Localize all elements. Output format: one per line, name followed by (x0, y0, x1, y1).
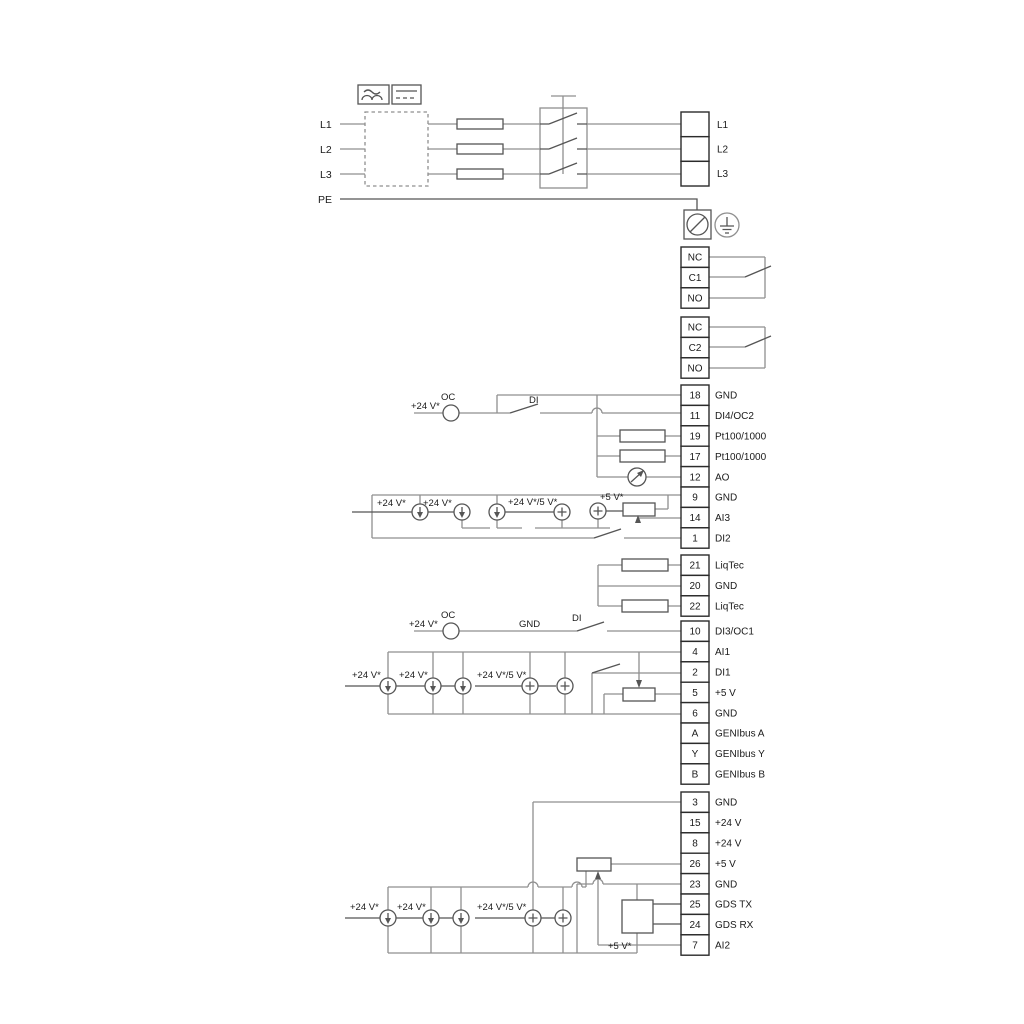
gnd3-wire (533, 802, 681, 910)
group3-rail (388, 871, 586, 887)
io1-terminal-label-GND: GND (715, 391, 737, 402)
label-24v-g1b: +24 V* (423, 498, 452, 509)
label-gnd-wire: GND (519, 619, 540, 630)
io2-terminal-number-B: B (692, 770, 699, 781)
liqtec-terminal-number-21: 21 (689, 561, 701, 572)
io2-terminal-number-4: 4 (692, 647, 698, 658)
label-l3: L3 (320, 169, 332, 181)
io1-terminal-number-11: 11 (690, 411, 701, 422)
io3-terminal-label-+5 V: +5 V (715, 859, 736, 870)
liqtec-resistor-1 (622, 559, 668, 571)
pt100-resistor-2 (620, 450, 665, 462)
label-di4: DI (529, 395, 539, 406)
wiring-diagram: L1L2L3 NCC1NO NCC2NO 18GND11DI4/OC219Pt1… (0, 0, 1024, 1024)
label-24v-g2a: +24 V* (352, 670, 381, 681)
io3-terminal-number-8: 8 (692, 839, 698, 850)
liqtec-terminal-number-20: 20 (689, 581, 701, 592)
group1-lower-brackets (462, 519, 610, 528)
label-24v5v-g3: +24 V*/5 V* (477, 902, 527, 913)
earth-ground-icon (720, 217, 734, 233)
group1-potentiometer (623, 503, 655, 516)
fuse-l3 (457, 169, 503, 179)
io3-terminal-label-+24 V: +24 V (715, 839, 742, 850)
liqtec-terminal-number-22: 22 (689, 602, 701, 613)
io1-terminal-number-9: 9 (692, 493, 698, 504)
current-source-down-icon (453, 910, 469, 926)
di2-switch-lever (594, 529, 621, 538)
io2-terminal-label-+5 V: +5 V (715, 688, 736, 699)
io3-terminal-label-GDS TX: GDS TX (715, 900, 752, 911)
current-source-plus-icon (590, 503, 606, 519)
group1-stubs (352, 511, 623, 512)
relay2-terminal-number-NO: NO (688, 364, 703, 375)
analog-group3-wiring (345, 802, 681, 953)
oc1-open-collector-circle (443, 623, 459, 639)
relay2-terminal-number-C2: C2 (689, 343, 702, 354)
fuse-l2 (457, 144, 503, 154)
io1-terminal-label-AO: AO (715, 472, 730, 483)
di3-wiring (414, 622, 681, 639)
io3-terminal-label-GND: GND (715, 798, 737, 809)
label-24v-g3a: +24 V* (350, 902, 379, 913)
io3-terminal-number-26: 26 (689, 859, 701, 870)
pe-wire (340, 199, 697, 210)
io1-terminal-number-18: 18 (689, 391, 701, 402)
relay2-wiring (709, 327, 771, 368)
mains-terminal-label-L2: L2 (717, 145, 729, 156)
current-source-down-icon (489, 504, 505, 520)
mains-terminal-box-L2 (681, 137, 709, 162)
io2-terminal-number-2: 2 (692, 668, 698, 679)
label-24v-oc2: +24 V* (411, 401, 440, 412)
di4-wire (540, 408, 681, 413)
gds-wires (653, 904, 681, 924)
ai2-wiper-arrow (595, 871, 601, 879)
oc2-open-collector-circle (443, 405, 459, 421)
io1-wiring (414, 395, 681, 486)
label-24v-oc1: +24 V* (409, 619, 438, 630)
current-source-down-icon (455, 678, 471, 694)
io3-terminal-label-GDS RX: GDS RX (715, 920, 754, 931)
io3-terminal-number-7: 7 (692, 941, 698, 952)
terminal-block-mains: L1L2L3 (681, 112, 729, 186)
terminal-block-liqtec: 21LiqTec20GND22LiqTec (681, 555, 744, 616)
io1-terminal-label-DI2: DI2 (715, 534, 731, 545)
label-24v-g3b: +24 V* (397, 902, 426, 913)
rectifier-dashed-box (365, 112, 428, 186)
io1-terminal-label-Pt100/1000: Pt100/1000 (715, 432, 767, 443)
io1-terminal-number-1: 1 (692, 534, 698, 545)
di1-switch-lever (592, 664, 620, 673)
label-oc1: OC (441, 610, 455, 621)
pt100-resistor-1 (620, 430, 665, 442)
terminal-block-io2: 10DI3/OC14AI12DI15+5 V6GNDAGENIbus AYGEN… (681, 621, 765, 784)
terminal-block-relay1: NCC1NO (681, 247, 709, 308)
io2-terminal-number-5: 5 (692, 688, 698, 699)
io1-terminal-label-Pt100/1000: Pt100/1000 (715, 452, 767, 463)
current-source-down-icon (380, 678, 396, 694)
dc-symbol-box (392, 85, 421, 104)
io2-terminal-number-6: 6 (692, 708, 698, 719)
io2-terminal-number-A: A (692, 729, 699, 740)
fuse-l1 (457, 119, 503, 129)
mains-wires (340, 124, 681, 174)
io1-terminal-label-GND: GND (715, 493, 737, 504)
wiring-diagram-page: L1L2L3 NCC1NO NCC2NO 18GND11DI4/OC219Pt1… (0, 0, 1024, 1024)
liqtec-terminal-label-GND: GND (715, 581, 737, 592)
io2-terminal-number-Y: Y (692, 749, 699, 760)
label-l1: L1 (320, 119, 332, 131)
relay1-wires (709, 257, 765, 298)
io3-terminal-number-25: 25 (689, 900, 701, 911)
io1-terminal-number-12: 12 (689, 472, 701, 483)
io1-terminal-label-DI4/OC2: DI4/OC2 (715, 411, 754, 422)
label-5v-g1: +5 V* (600, 492, 624, 503)
label-24v-g2b: +24 V* (399, 670, 428, 681)
io2-terminal-label-GENIbus Y: GENIbus Y (715, 749, 765, 760)
di4-bracket (497, 395, 681, 413)
liqtec-resistor-2 (622, 600, 668, 612)
group2-potentiometer (623, 688, 655, 701)
current-source-plus-icon (557, 678, 573, 694)
io3-terminal-number-15: 15 (689, 818, 701, 829)
mains-terminal-label-L3: L3 (717, 169, 729, 180)
liqtec-terminal-label-LiqTec: LiqTec (715, 561, 744, 572)
io3-terminal-label-AI2: AI2 (715, 941, 730, 952)
io2-terminal-label-GENIbus B: GENIbus B (715, 770, 765, 781)
io1-terminal-number-19: 19 (689, 432, 701, 443)
label-di3: DI (572, 613, 582, 624)
io3-terminal-number-23: 23 (689, 879, 701, 890)
ai1-wiper-arrow (636, 680, 642, 688)
current-source-plus-icon (525, 910, 541, 926)
label-5v-gds: +5 V* (608, 941, 632, 952)
group3-potentiometer (577, 858, 611, 871)
liqtec-terminal-label-LiqTec: LiqTec (715, 602, 744, 613)
relay2-contact-lever (745, 336, 771, 347)
relay2-wires (709, 327, 765, 368)
terminal-block-io1: 18GND11DI4/OC219Pt100/100017Pt100/100012… (681, 385, 767, 548)
label-24v-g1a: +24 V* (377, 498, 406, 509)
ac-symbol-box (358, 85, 389, 104)
group1-pot-wires (655, 495, 668, 509)
io3-terminal-number-3: 3 (692, 798, 698, 809)
gds-sensor-box (622, 900, 653, 933)
label-24v5v-g1: +24 V*/5 V* (508, 497, 558, 508)
io2-terminal-number-10: 10 (689, 627, 701, 638)
terminal-block-relay2: NCC2NO (681, 317, 709, 378)
terminal-block-io3: 3GND15+24 V8+24 V26+5 V23GND25GDS TX24GD… (681, 792, 754, 955)
liqtec-wiring (598, 559, 681, 612)
mains-terminal-box-L3 (681, 161, 709, 186)
relay1-terminal-number-C1: C1 (689, 273, 702, 284)
io1-terminal-number-14: 14 (689, 513, 701, 524)
relay1-terminal-number-NO: NO (688, 294, 703, 305)
io2-terminal-label-GENIbus A: GENIbus A (715, 729, 765, 740)
label-l2: L2 (320, 144, 332, 156)
label-pe: PE (318, 194, 332, 206)
power-input-labels: L1 L2 L3 PE (318, 119, 332, 206)
io2-terminal-label-AI1: AI1 (715, 647, 730, 658)
relay1-wiring (709, 257, 771, 298)
mains-terminal-label-L1: L1 (717, 120, 729, 131)
current-source-down-icon (454, 504, 470, 520)
relay1-contact-lever (745, 266, 771, 277)
io2-terminal-label-DI3/OC1: DI3/OC1 (715, 627, 754, 638)
io3-terminal-label-GND: GND (715, 879, 737, 890)
io1-terminal-number-17: 17 (689, 452, 701, 463)
io2-terminal-label-GND: GND (715, 708, 737, 719)
current-source-down-icon (380, 910, 396, 926)
label-24v5v-g2: +24 V*/5 V* (477, 670, 527, 681)
mains-terminal-box-L1 (681, 112, 709, 137)
io3-terminal-label-+24 V: +24 V (715, 818, 742, 829)
io2-terminal-label-DI1: DI1 (715, 668, 731, 679)
io3-terminal-number-24: 24 (689, 920, 701, 931)
relay2-terminal-number-NC: NC (688, 323, 702, 334)
current-source-plus-icon (555, 910, 571, 926)
label-oc2: OC (441, 392, 455, 403)
io1-terminal-label-AI3: AI3 (715, 513, 730, 524)
mains-wiring (340, 85, 739, 239)
relay1-terminal-number-NC: NC (688, 253, 702, 264)
